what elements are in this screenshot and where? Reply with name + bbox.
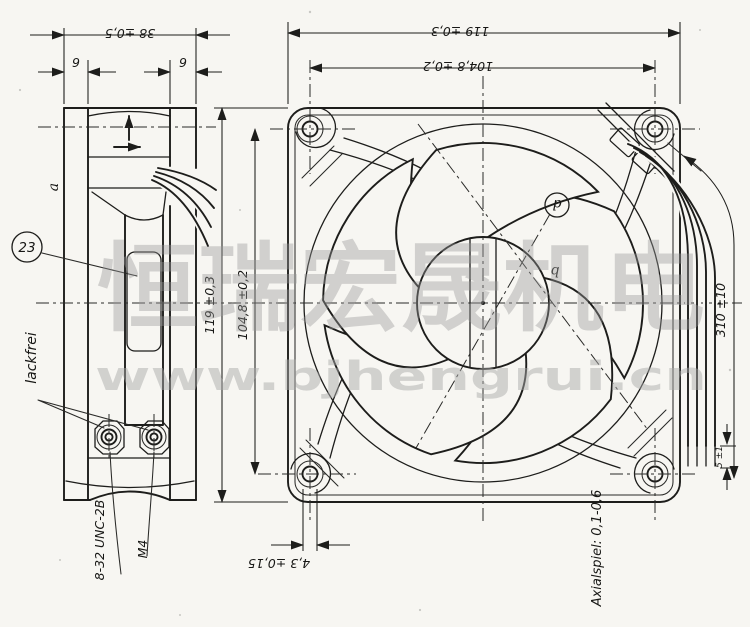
watermark: 恒瑞宏晟机电 www.bjhengrui.cn (95, 233, 707, 400)
fan-technical-drawing: 38 ±0,5 9 9 a 23 lackfrei (0, 0, 750, 627)
dim-depth-text: 38 ±0,5 (105, 26, 155, 41)
svg-text:5 ±1: 5 ±1 (715, 446, 725, 468)
svg-text:119 ±0,3: 119 ±0,3 (431, 24, 489, 39)
mounting-hole-br (635, 454, 674, 493)
callout-m4-thread: M4 (135, 452, 154, 558)
mounting-hole-tl (296, 108, 335, 147)
svg-text:23: 23 (18, 240, 35, 256)
svg-text:4,3 ±0,15: 4,3 ±0,15 (248, 556, 310, 571)
dim-depth: 38 ±0,5 (30, 26, 230, 104)
ref-letter-a: a (46, 183, 62, 191)
dim-flange-right: 9 (144, 55, 222, 104)
dim-hole-pitch-top: 104,8 ±0,2 (310, 59, 655, 74)
svg-text:lackfrei: lackfrei (24, 332, 40, 384)
svg-text:9: 9 (72, 55, 80, 70)
dim-strip-length: 5 ±1 (715, 424, 736, 490)
callout-unc-thread: 8-32 UNC-2B (92, 452, 121, 580)
svg-text:310 ±10: 310 ±10 (713, 283, 728, 337)
svg-text:d: d (552, 196, 561, 212)
svg-text:M4: M4 (135, 540, 150, 559)
svg-text:104,8 ±0,2: 104,8 ±0,2 (423, 59, 493, 74)
stripped-wire-ends (688, 446, 715, 466)
watermark-url: www.bjhengrui.cn (95, 354, 707, 400)
watermark-brand: 恒瑞宏晟机电 (97, 233, 705, 345)
dim-flange-left: 9 (38, 55, 116, 104)
svg-text:8-32 UNC-2B: 8-32 UNC-2B (92, 500, 107, 581)
svg-text:9: 9 (179, 55, 187, 70)
note-axial-play: Axialspiel: 0,1-0,6 (590, 490, 605, 608)
